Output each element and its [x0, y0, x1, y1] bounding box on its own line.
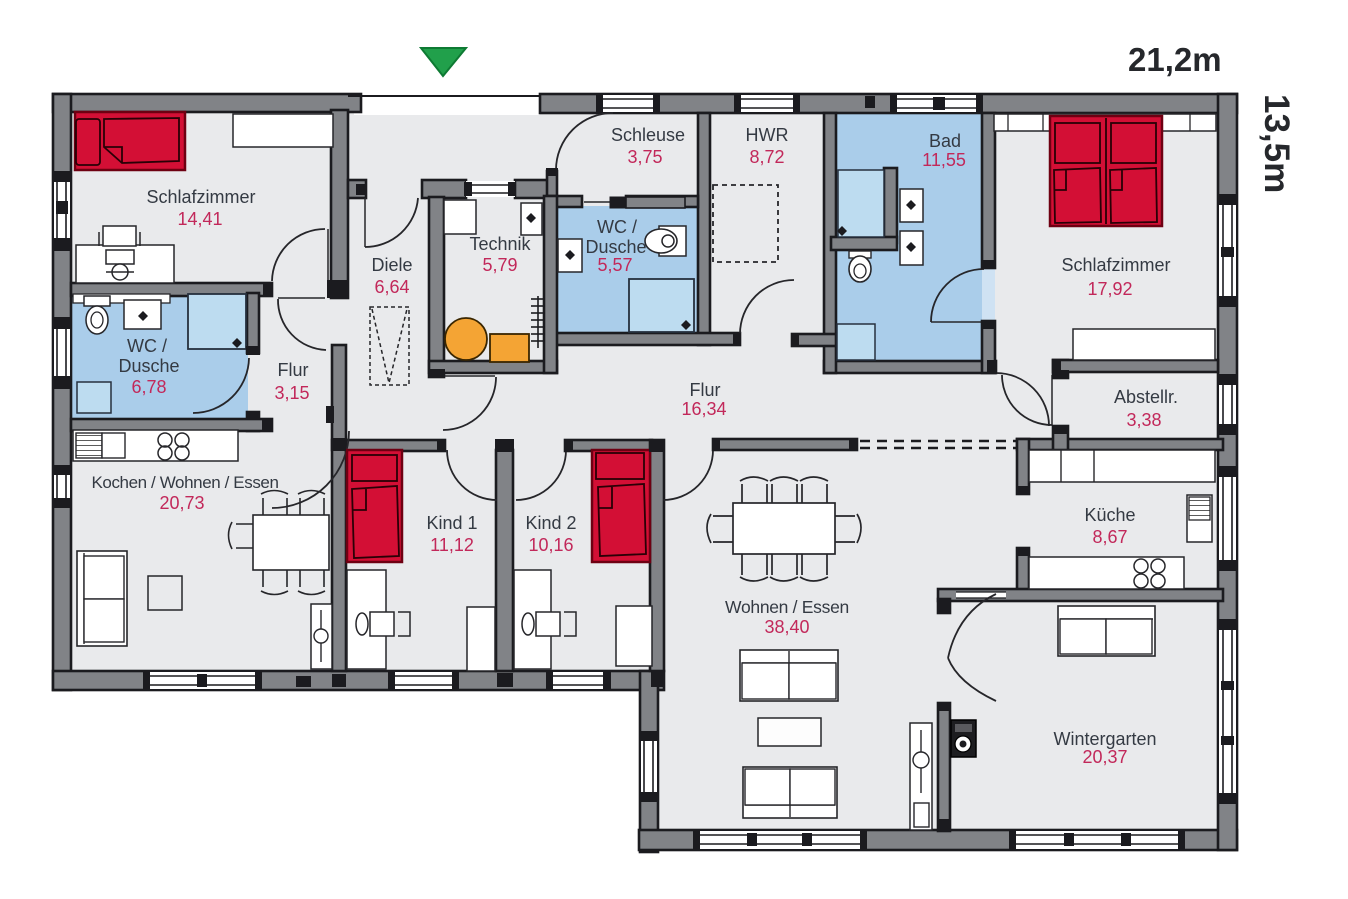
- svg-text:20,73: 20,73: [159, 493, 204, 513]
- svg-text:Schleuse: Schleuse: [611, 125, 685, 145]
- svg-text:Kind 2: Kind 2: [525, 513, 576, 533]
- svg-text:13,5m: 13,5m: [1257, 94, 1296, 193]
- svg-text:Küche: Küche: [1084, 505, 1135, 525]
- svg-text:Dusche: Dusche: [585, 237, 646, 257]
- svg-text:WC /: WC /: [597, 217, 637, 237]
- svg-text:Diele: Diele: [371, 255, 412, 275]
- svg-text:Abstellr.: Abstellr.: [1114, 387, 1178, 407]
- svg-text:6,64: 6,64: [374, 277, 409, 297]
- svg-text:Technik: Technik: [469, 234, 531, 254]
- svg-text:11,55: 11,55: [922, 150, 966, 170]
- svg-text:3,38: 3,38: [1126, 410, 1161, 430]
- svg-text:8,72: 8,72: [749, 147, 784, 167]
- svg-text:HWR: HWR: [746, 125, 789, 145]
- svg-text:Kind 1: Kind 1: [426, 513, 477, 533]
- svg-text:Kochen / Wohnen / Essen: Kochen / Wohnen / Essen: [91, 473, 278, 492]
- svg-text:Dusche: Dusche: [118, 356, 179, 376]
- svg-text:6,78: 6,78: [131, 377, 166, 397]
- svg-text:WC /: WC /: [127, 336, 167, 356]
- svg-text:10,16: 10,16: [528, 535, 573, 555]
- svg-text:Schlafzimmer: Schlafzimmer: [1061, 255, 1170, 275]
- svg-text:5,79: 5,79: [482, 255, 517, 275]
- svg-text:Flur: Flur: [278, 360, 309, 380]
- svg-text:16,34: 16,34: [681, 399, 726, 419]
- svg-text:Bad: Bad: [929, 131, 961, 151]
- svg-text:21,2m: 21,2m: [1128, 41, 1222, 78]
- svg-text:Flur: Flur: [690, 380, 721, 400]
- svg-text:8,67: 8,67: [1092, 527, 1127, 547]
- svg-text:20,37: 20,37: [1082, 747, 1127, 767]
- svg-text:Wohnen / Essen: Wohnen / Essen: [725, 597, 849, 617]
- svg-text:3,75: 3,75: [627, 147, 662, 167]
- svg-text:Wintergarten: Wintergarten: [1053, 729, 1156, 749]
- svg-text:17,92: 17,92: [1087, 279, 1132, 299]
- svg-text:5,57: 5,57: [597, 255, 632, 275]
- svg-text:11,12: 11,12: [430, 535, 474, 555]
- svg-text:14,41: 14,41: [177, 209, 222, 229]
- svg-text:3,15: 3,15: [274, 383, 309, 403]
- svg-text:Schlafzimmer: Schlafzimmer: [146, 187, 255, 207]
- svg-text:38,40: 38,40: [764, 617, 809, 637]
